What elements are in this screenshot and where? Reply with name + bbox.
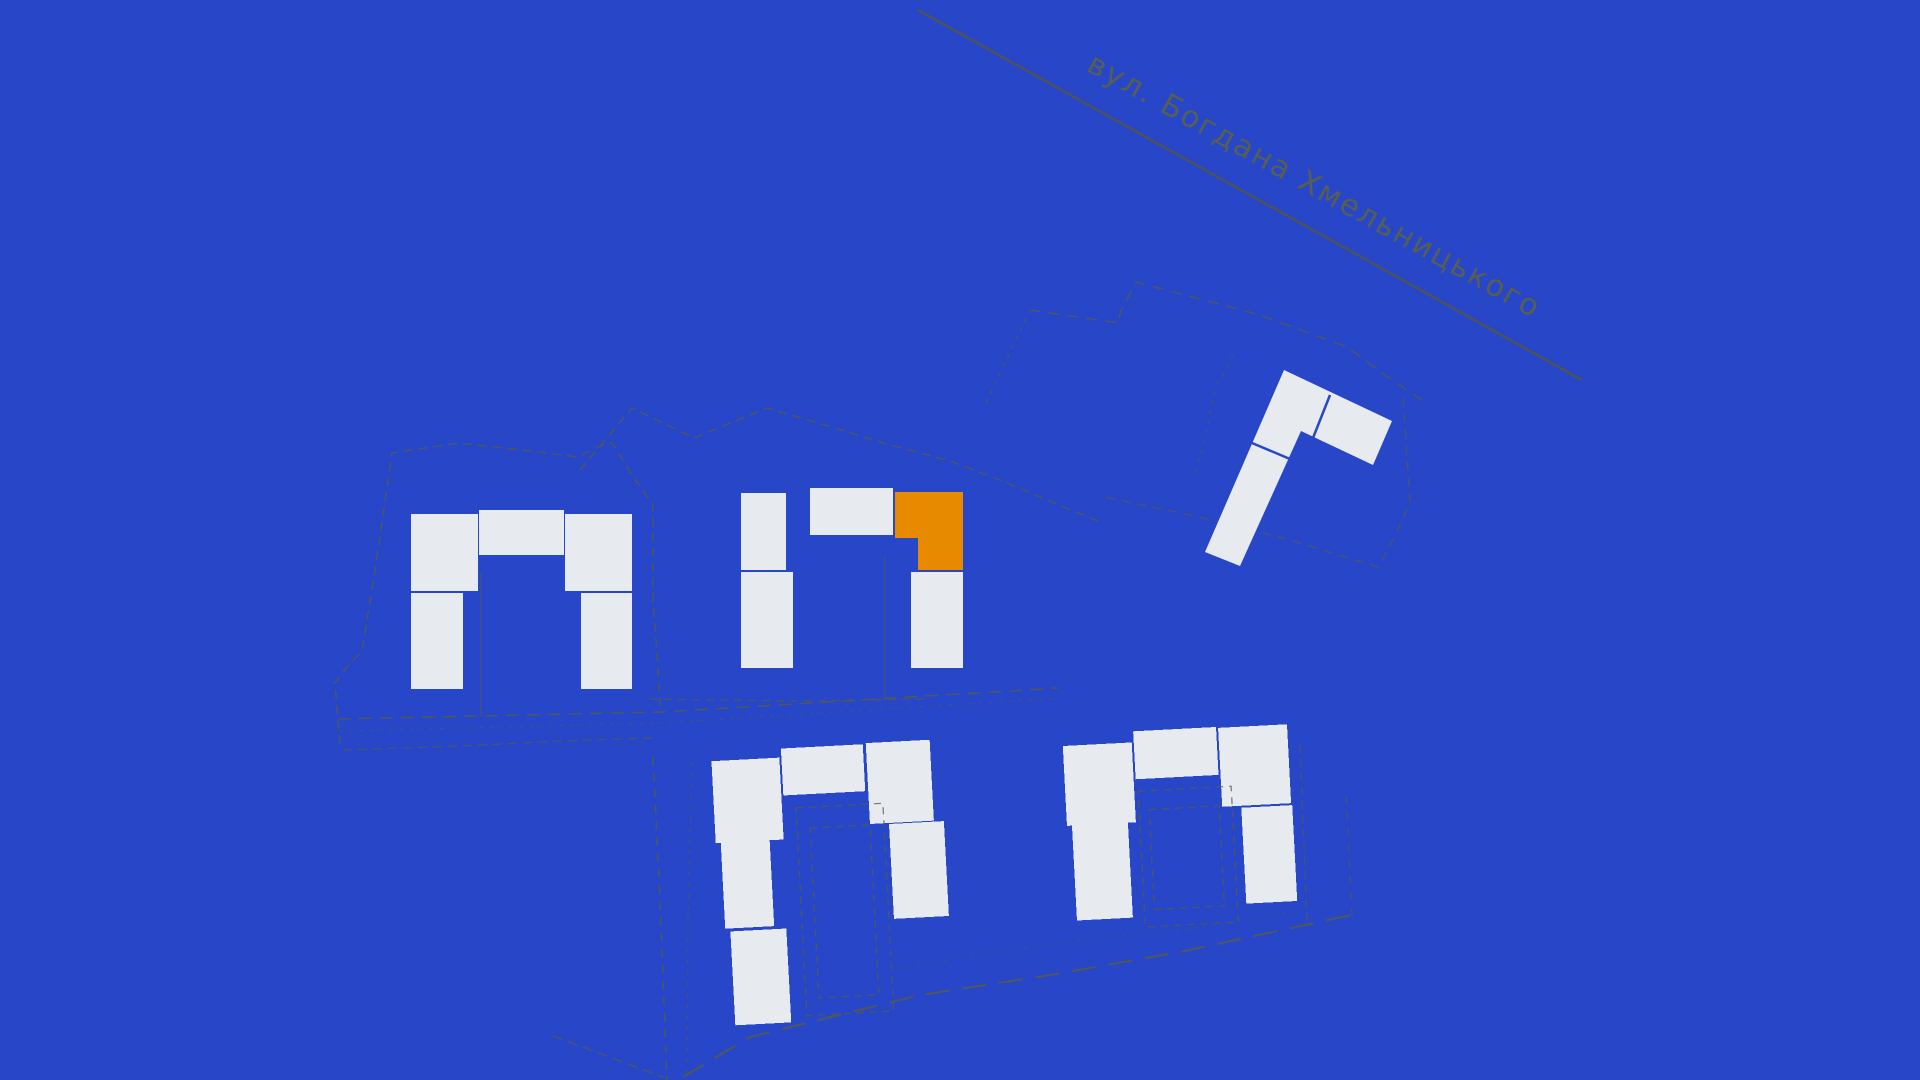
building-block[interactable] — [581, 593, 632, 689]
building-block[interactable] — [1133, 727, 1218, 779]
building-block[interactable] — [711, 758, 783, 843]
building-block[interactable] — [411, 593, 463, 689]
building-block[interactable] — [781, 744, 865, 795]
building-block[interactable] — [479, 510, 564, 555]
building-block[interactable] — [1241, 805, 1297, 904]
building-block[interactable] — [411, 514, 478, 591]
building-block[interactable] — [1063, 742, 1136, 826]
building-block[interactable] — [1072, 823, 1133, 921]
building-block[interactable] — [866, 740, 934, 824]
building-block[interactable] — [741, 493, 786, 570]
building-block[interactable] — [730, 929, 791, 1026]
building-block[interactable] — [741, 572, 793, 668]
building-block[interactable] — [721, 840, 774, 928]
building-block[interactable] — [810, 488, 893, 535]
building-block[interactable] — [565, 514, 632, 591]
building-block[interactable] — [911, 572, 963, 668]
site-plan-map: вул. Богдана Хмельницького — [0, 0, 1920, 1080]
building-block[interactable] — [889, 821, 949, 919]
building-block[interactable] — [1218, 724, 1291, 807]
